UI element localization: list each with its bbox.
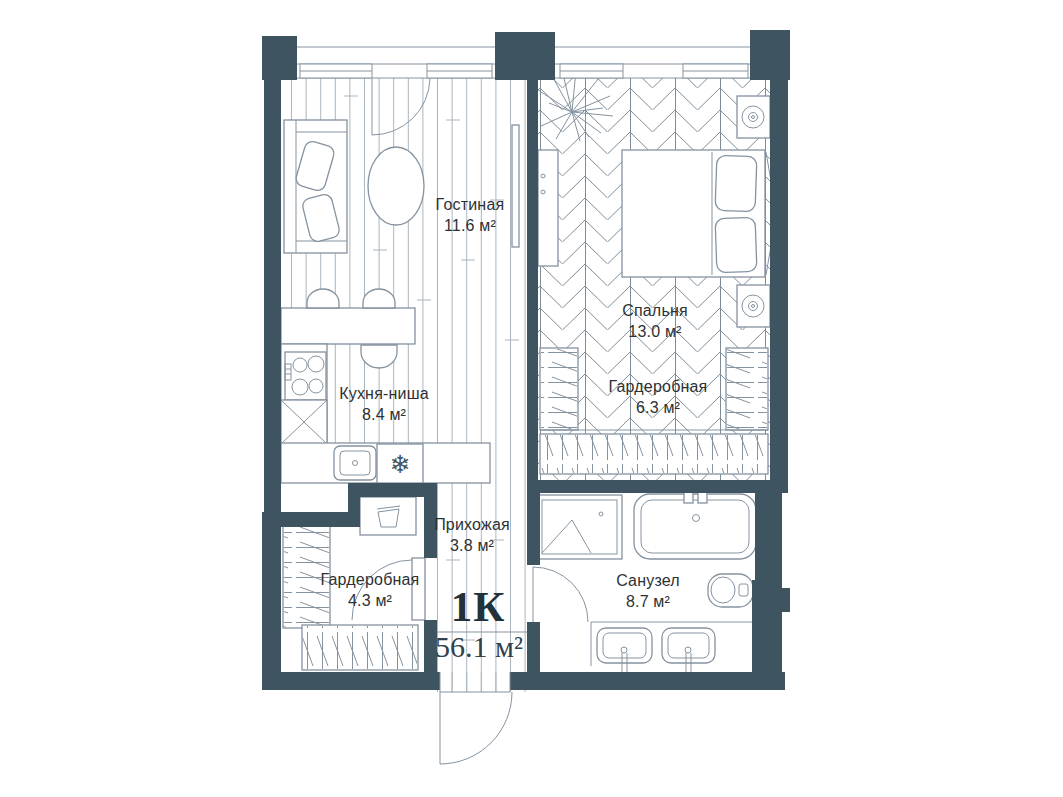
bed (622, 150, 773, 277)
room-label-kitchen: Кухня-ниша 8.4 м² (339, 383, 429, 425)
room-name: Гостиная (436, 194, 505, 215)
floor-plan-drawing: ❄ (0, 0, 1063, 797)
window (427, 64, 492, 78)
toilet (708, 574, 753, 607)
room-area: 8.7 м² (616, 591, 680, 612)
room-area: 13.0 м² (622, 321, 688, 342)
wall-right (770, 72, 788, 480)
room-area: 4.3 м² (321, 590, 420, 611)
kitchen-cabinet-x (281, 400, 327, 444)
wall-bath-right-upper (755, 493, 782, 580)
snowflake-icon: ❄ (390, 450, 411, 479)
apartment-type-label: 1К (451, 582, 506, 631)
wall-step (780, 588, 790, 612)
wall-left (264, 76, 281, 512)
fridge: ❄ (377, 444, 423, 483)
pillow (715, 217, 757, 272)
entrance-door (440, 692, 512, 764)
tv (512, 125, 519, 247)
wall-left-lower (262, 512, 281, 690)
total-area-label: 56.1 м² (435, 630, 523, 664)
bathtub (634, 489, 756, 559)
kitchen-sink (334, 446, 376, 480)
bar-counter (281, 308, 415, 344)
wall-bottom-right (510, 672, 785, 690)
stove (285, 352, 326, 400)
room-label-hallway: Прихожая 3.8 м² (434, 514, 510, 556)
wall-bath-right-lower (752, 580, 782, 672)
wall-niche-top (348, 483, 437, 497)
room-label-wardrobe-small: Гардеробная 4.3 м² (321, 569, 420, 611)
wall-bath-top (527, 480, 788, 493)
room-area: 3.8 м² (434, 535, 510, 556)
wall-pillar (495, 32, 555, 80)
entrance (440, 672, 512, 764)
washing-machine (360, 497, 416, 535)
room-area: 11.6 м² (436, 215, 505, 236)
wall-wardrobe-top (264, 512, 352, 527)
wall-pillar (262, 36, 297, 80)
nightstand-speaker (737, 285, 770, 327)
room-label-living: Гостиная 11.6 м² (436, 194, 505, 236)
wall-divider (527, 72, 538, 480)
wall-bath-left-lower (527, 622, 540, 672)
window (300, 64, 372, 78)
wall-bottom-left (262, 672, 440, 690)
shower (537, 495, 622, 559)
pillow (715, 155, 757, 211)
room-name: Спальня (622, 300, 688, 321)
room-name: Кухня-ниша (339, 383, 429, 404)
room-area: 8.4 м² (339, 404, 429, 425)
room-label-bathroom: Санузел 8.7 м² (616, 570, 680, 612)
coffee-table (368, 147, 424, 225)
floor-plan: ❄ (0, 0, 1063, 797)
window (560, 64, 623, 78)
sofa (284, 120, 347, 253)
bedroom-closet (538, 150, 558, 266)
wall-niche-jog (348, 483, 360, 527)
room-name: Прихожая (434, 514, 510, 535)
nightstand-speaker (737, 96, 770, 138)
double-sink-vanity (591, 622, 752, 672)
bathroom-door (533, 567, 588, 622)
room-label-bedroom: Спальня 13.0 м² (622, 300, 688, 342)
wall-bath-left-upper (527, 493, 540, 565)
room-name: Гардеробная (321, 569, 420, 590)
room-name: Гардеробная (609, 376, 708, 397)
room-name: Санузел (616, 570, 680, 591)
room-area: 6.3 м² (609, 397, 708, 418)
window (683, 64, 748, 78)
room-label-wardrobe-large: Гардеробная 6.3 м² (609, 376, 708, 418)
entrance-threshold-floor (440, 672, 510, 692)
